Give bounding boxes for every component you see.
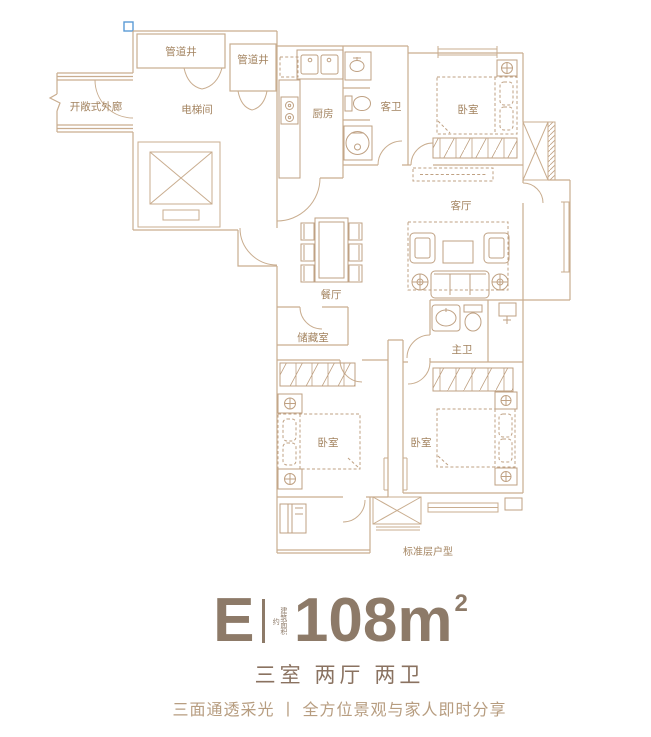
room-label-dining-room: 餐厅 [321, 288, 342, 301]
plan-caption: 标准层户型 [403, 545, 453, 558]
kitchen-door-arc [277, 178, 320, 221]
balcony-right-door-arc [523, 183, 543, 203]
wardrobe-top-icon [433, 138, 517, 158]
duct-shaft-right-icon [523, 122, 555, 180]
room-label-pipe-shaft-1: 管道井 [165, 45, 197, 58]
bedroom-top-window [438, 46, 497, 58]
balcony-left-door-arc [343, 500, 365, 522]
pedestal-basin-icon [344, 126, 372, 160]
room-label-bedroom-left: 卧室 [318, 436, 339, 449]
pipe-shaft-2-box [230, 44, 276, 91]
room-label-living-room: 客厅 [451, 199, 472, 212]
entry-door-arc [240, 228, 277, 265]
elevator-icon [138, 142, 220, 227]
side-table-right-icon [492, 274, 508, 290]
armchair-left-icon [410, 233, 435, 263]
wardrobe-left-icon [280, 363, 355, 386]
area-value: 108m2 [294, 590, 466, 652]
area-number: 108m [294, 590, 453, 652]
washer-cabinet-icon [280, 504, 306, 533]
walls [50, 31, 570, 553]
rug-icon [408, 222, 508, 290]
mop-sink-icon [499, 303, 516, 324]
dining-table-icon [315, 218, 348, 282]
unit-title: E 建筑面积约 108m2 [213, 590, 466, 652]
duct-shaft-bottom-icon [373, 497, 421, 530]
toilet-icon [345, 96, 371, 111]
tv-cabinet-icon [413, 168, 493, 181]
door-arcs [95, 68, 543, 522]
guest-bath-door-arc [378, 141, 402, 165]
dining-chairs-icon [301, 223, 362, 282]
master-bath-door-arc [407, 335, 430, 358]
room-label-master-bath: 主卫 [452, 344, 473, 356]
bed-right-icon [437, 409, 515, 467]
unit-letter: E [213, 590, 254, 652]
room-label-guest-bath: 客卫 [381, 100, 402, 113]
fridge-icon [280, 57, 298, 77]
nightstand-icon [495, 468, 517, 485]
area-exponent: 2 [454, 592, 467, 616]
layout-summary: 三室 两厅 两卫 [28, 659, 651, 689]
master-toilet-icon [464, 305, 482, 331]
bedroom-top-door-arc [411, 143, 433, 165]
tagline: 三面通透采光 丨 全方位景观与家人即时分享 [28, 696, 651, 720]
vanity-sink-icon [345, 52, 371, 80]
furniture [278, 50, 522, 533]
shafts [138, 122, 555, 530]
floor-plan: 管道井 管道井 开敞式外廊 电梯间 厨房 客卫 卧室 客厅 餐厅 储藏室 主卫 … [0, 0, 651, 585]
room-label-storage: 储藏室 [297, 331, 329, 344]
kitchen-sink-icon [297, 50, 343, 79]
title-block: E 建筑面积约 108m2 三室 两厅 两卫 三面通透采光 丨 全方位景观与家人… [0, 590, 651, 720]
room-label-bedroom-right: 卧室 [411, 436, 432, 449]
nightstand-icon [495, 392, 517, 409]
bedroom-right-door-arc [408, 362, 430, 384]
room-label-kitchen: 厨房 [313, 107, 334, 120]
sofa-icon [431, 271, 489, 298]
stove-icon [279, 80, 300, 178]
title-divider [262, 599, 265, 643]
balcony-right-window [561, 202, 570, 272]
coffee-table-icon [443, 241, 473, 263]
nightstand-icon [278, 394, 302, 413]
wardrobe-right-icon [433, 368, 513, 391]
master-basin-icon [432, 305, 460, 331]
room-label-open-corridor: 开敞式外廊 [70, 100, 123, 113]
nightstand-icon [278, 469, 302, 489]
side-table-left-icon [412, 274, 428, 290]
armchair-right-icon [484, 233, 509, 263]
room-label-bedroom-top: 卧室 [458, 103, 479, 116]
nightstand-icon [497, 60, 517, 76]
ac-unit-box-icon [505, 498, 522, 510]
room-label-pipe-shaft-2: 管道井 [237, 53, 269, 66]
room-label-elevator-hall: 电梯间 [181, 103, 213, 116]
storage-door-arc [300, 307, 322, 329]
selection-handle-icon [124, 22, 133, 31]
area-note: 建筑面积约 [272, 604, 287, 638]
